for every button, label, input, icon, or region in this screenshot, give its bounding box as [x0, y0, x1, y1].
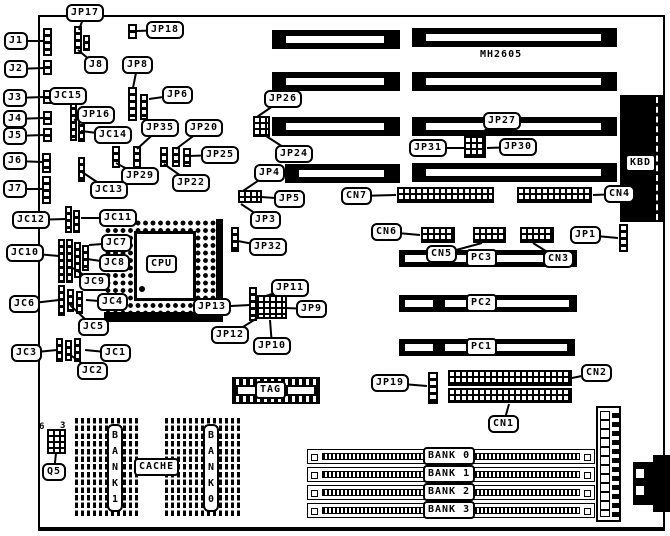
- cache-bank0-label: B A N K 0: [203, 424, 219, 512]
- j8-label: J8: [84, 56, 108, 74]
- pc3-label: PC3: [466, 249, 497, 267]
- pc2-label: PC2: [466, 294, 497, 312]
- jp10-label: JP10: [253, 337, 291, 355]
- j2-label: J2: [4, 60, 28, 78]
- cn6-label: CN6: [371, 223, 402, 241]
- jc1-label: JC1: [100, 344, 131, 362]
- jp24-label: JP24: [275, 145, 313, 163]
- jp26-label: JP26: [264, 90, 302, 108]
- jc2-label: JC2: [77, 362, 108, 380]
- jp22-label: JP22: [172, 174, 210, 192]
- j4-label: J4: [3, 110, 27, 128]
- j7-label: J7: [3, 180, 27, 198]
- jc9-label: JC9: [79, 273, 110, 291]
- jp27-label: JP27: [483, 112, 521, 130]
- cn7-label: CN7: [341, 187, 372, 205]
- jc3-label: JC3: [11, 344, 42, 362]
- cn3-label: CN3: [543, 250, 574, 268]
- jp13-label: JP13: [193, 298, 231, 316]
- cn1-label: CN1: [488, 415, 519, 433]
- jp17-label: JP17: [66, 4, 104, 22]
- jp9-label: JP9: [296, 300, 327, 318]
- jp3-label: JP3: [250, 211, 281, 229]
- jc15-label: JC15: [49, 87, 87, 105]
- kbd-label: KBD: [625, 154, 656, 172]
- jp19-label: JP19: [371, 374, 409, 392]
- j6-label: J6: [3, 152, 27, 170]
- jc13-label: JC13: [90, 181, 128, 199]
- cn2-label: CN2: [581, 364, 612, 382]
- jc11-label: JC11: [99, 209, 137, 227]
- jp32-label: JP32: [249, 238, 287, 256]
- j3-label: J3: [3, 89, 27, 107]
- jp20-label: JP20: [185, 119, 223, 137]
- bank2-label: BANK 2: [423, 483, 475, 501]
- jp25-label: JP25: [201, 146, 239, 164]
- jc6-label: JC6: [9, 295, 40, 313]
- cache-label: CACHE: [134, 458, 179, 476]
- jp11-label: JP11: [271, 279, 309, 297]
- cache-bank1-label: B A N K 1: [107, 424, 123, 512]
- bank3-label: BANK 3: [423, 501, 475, 519]
- jp12-label: JP12: [211, 326, 249, 344]
- jp30-label: JP30: [499, 138, 537, 156]
- jc12-label: JC12: [12, 211, 50, 229]
- jp35-label: JP35: [141, 119, 179, 137]
- bank1-label: BANK 1: [423, 465, 475, 483]
- q5-label: Q5: [42, 463, 66, 481]
- j5-label: J5: [3, 127, 27, 145]
- jc7-label: JC7: [101, 234, 132, 252]
- jp18-label: JP18: [146, 21, 184, 39]
- jc5-label: JC5: [78, 318, 109, 336]
- bank0-label: BANK 0: [423, 447, 475, 465]
- jp1-label: JP1: [570, 226, 601, 244]
- jc10-label: JC10: [6, 244, 44, 262]
- component-labels-layer: J1J2J3J4J5J6J7JC12JC10JC6JC3JP17JP18J8JP…: [0, 0, 670, 536]
- cn5-label: CN5: [426, 245, 457, 263]
- jp31-label: JP31: [409, 139, 447, 157]
- cpu-label: CPU: [146, 255, 177, 273]
- jc8-label: JC8: [99, 254, 130, 272]
- tag-label: TAG: [255, 381, 286, 399]
- jp6-label: JP6: [162, 86, 193, 104]
- j1-label: J1: [4, 32, 28, 50]
- pc1-label: PC1: [466, 338, 497, 356]
- motherboard-diagram: MH2605 6 3 J1J2J3J4J5J6J7JC12JC10JC6JC3J…: [0, 0, 670, 536]
- jp8-label: JP8: [122, 56, 153, 74]
- jc4-label: JC4: [97, 293, 128, 311]
- jp4-label: JP4: [254, 164, 285, 182]
- jc14-label: JC14: [94, 126, 132, 144]
- cn4-label: CN4: [604, 185, 635, 203]
- jp16-label: JP16: [77, 106, 115, 124]
- jp5-label: JP5: [274, 190, 305, 208]
